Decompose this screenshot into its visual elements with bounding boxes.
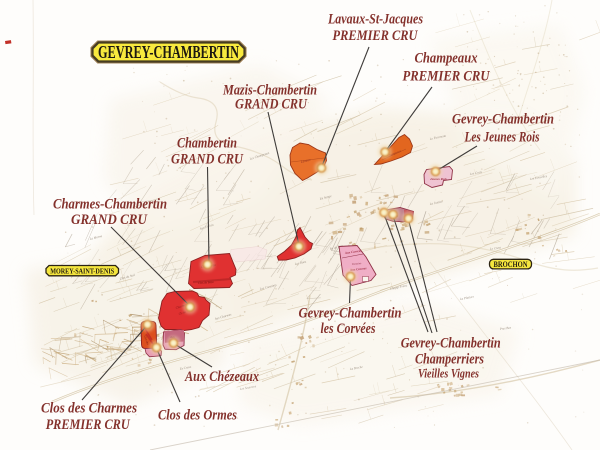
svg-text:PREMIER CRU: PREMIER CRU (333, 28, 419, 44)
svg-text:PREMIER CRU: PREMIER CRU (403, 69, 491, 85)
svg-text:GRAND CRU: GRAND CRU (71, 212, 148, 228)
svg-text:Clos des Charmes: Clos des Charmes (41, 401, 137, 417)
svg-text:PREMIER CRU: PREMIER CRU (46, 417, 131, 433)
svg-text:MOREY-SAINT-DENIS: MOREY-SAINT-DENIS (50, 266, 114, 275)
svg-text:Vieilles Vignes: Vieilles Vignes (418, 366, 479, 381)
svg-text:Gevrey-Chambertin: Gevrey-Chambertin (452, 112, 554, 128)
svg-text:GEVREY-CHAMBERTIN: GEVREY-CHAMBERTIN (98, 42, 239, 62)
svg-text:Gevrey-Chambertin: Gevrey-Chambertin (401, 336, 501, 352)
svg-text:Les Jeunes Rois: Les Jeunes Rois (464, 130, 540, 146)
svg-text:Champeaux: Champeaux (415, 51, 478, 67)
svg-text:Gevrey-Chambertin: Gevrey-Chambertin (299, 306, 402, 322)
svg-text:les Corvées: les Corvées (321, 321, 376, 337)
svg-text:Clos des Ormes: Clos des Ormes (158, 408, 237, 424)
svg-text:GRAND CRU: GRAND CRU (171, 152, 244, 168)
svg-text:BROCHON: BROCHON (494, 260, 528, 269)
svg-text:Charmes-Chambertin: Charmes-Chambertin (53, 197, 167, 213)
svg-text:GRAND CRU: GRAND CRU (235, 97, 308, 113)
svg-text:Chambertin: Chambertin (177, 136, 237, 152)
svg-text:Lavaux-St-Jacques: Lavaux-St-Jacques (327, 12, 423, 28)
svg-text:Aux Chézeaux: Aux Chézeaux (184, 369, 259, 385)
